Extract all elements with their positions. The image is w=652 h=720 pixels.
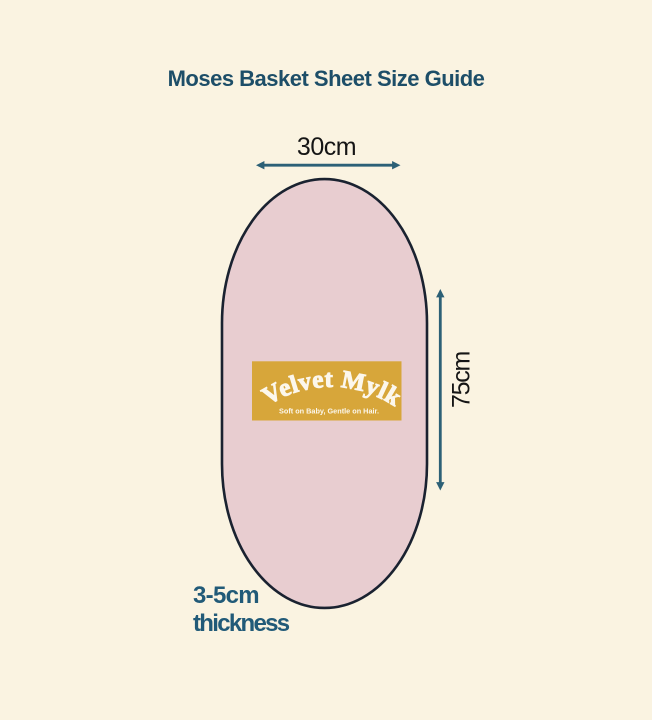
svg-text:Soft on Baby, Gentle on Hair.: Soft on Baby, Gentle on Hair. (279, 408, 379, 415)
